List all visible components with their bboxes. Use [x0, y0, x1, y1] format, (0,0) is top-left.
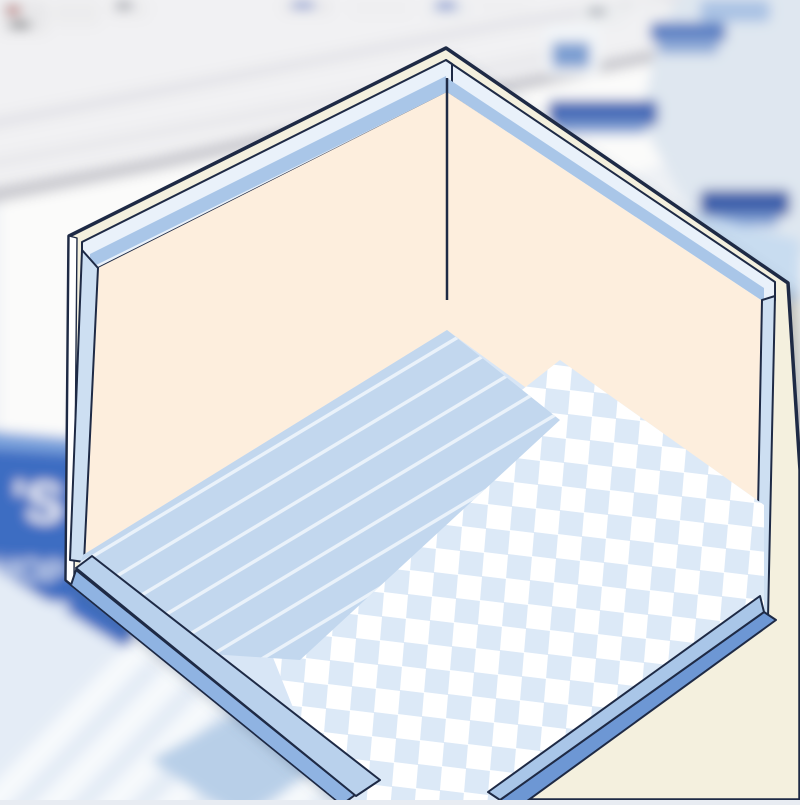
svg-text:'S: 'S	[9, 468, 66, 537]
